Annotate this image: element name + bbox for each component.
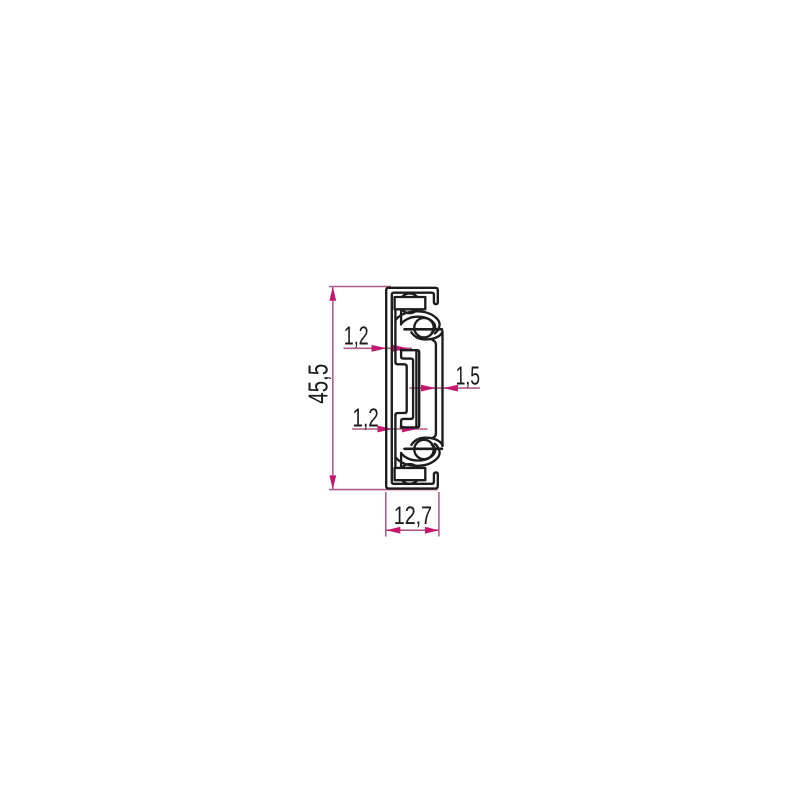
svg-text:45,5: 45,5 (303, 364, 334, 404)
svg-text:1,5: 1,5 (456, 360, 480, 390)
svg-text:12,7: 12,7 (394, 502, 433, 530)
svg-text:1,2: 1,2 (344, 320, 369, 350)
svg-text:1,2: 1,2 (353, 402, 379, 432)
